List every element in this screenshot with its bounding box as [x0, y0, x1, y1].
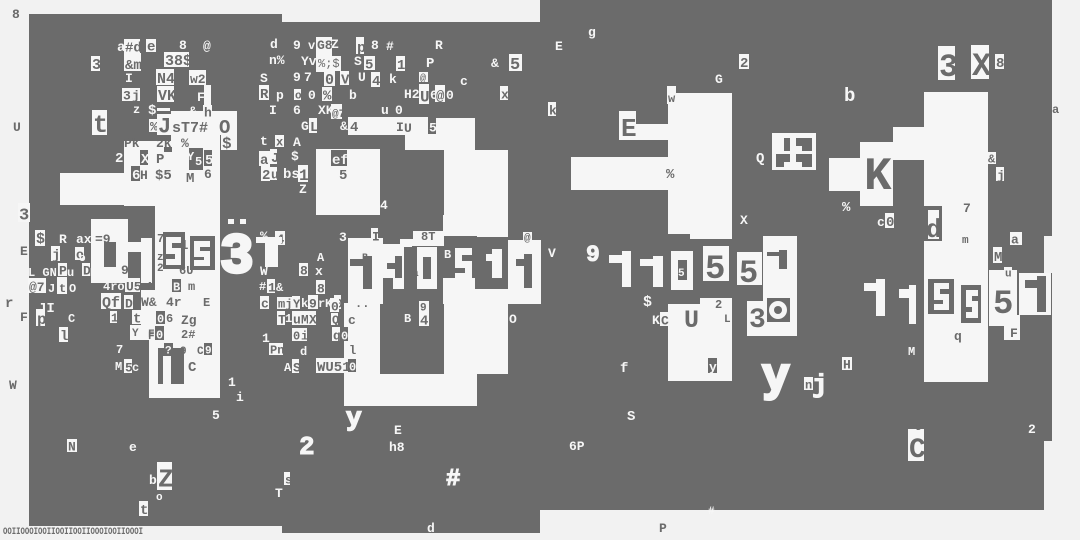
svg-text:?: ?	[165, 346, 172, 358]
svg-text:3: 3	[749, 305, 766, 336]
svg-text:P: P	[426, 56, 434, 72]
svg-text:X: X	[309, 312, 317, 327]
svg-text:O: O	[509, 312, 517, 327]
svg-text:w: w	[668, 92, 676, 106]
svg-text:Z: Z	[299, 182, 307, 197]
svg-text:$: $	[291, 149, 299, 164]
svg-text:@: @	[420, 73, 426, 85]
svg-text:2: 2	[740, 56, 748, 72]
svg-text:P: P	[659, 521, 667, 536]
svg-text:Yv: Yv	[301, 54, 317, 69]
svg-text:a: a	[1052, 103, 1059, 117]
svg-text:0: 0	[293, 329, 300, 343]
svg-text:m: m	[188, 280, 195, 294]
svg-text:7: 7	[157, 232, 164, 246]
svg-text:&: &	[340, 119, 348, 134]
svg-text:m: m	[962, 235, 969, 247]
svg-text:5: 5	[429, 120, 437, 135]
svg-text:t: t	[93, 111, 108, 140]
svg-text:#: #	[259, 280, 266, 294]
svg-text:q: q	[333, 328, 341, 343]
svg-text:u: u	[293, 312, 301, 327]
svg-text:u: u	[271, 167, 279, 182]
svg-text:C: C	[188, 360, 197, 376]
svg-text:C: C	[661, 313, 669, 328]
svg-text:N: N	[68, 439, 76, 454]
svg-text:@: @	[203, 39, 211, 54]
svg-text:@: @	[436, 89, 445, 105]
svg-text:W&: W&	[141, 295, 157, 310]
svg-text:$5: $5	[155, 168, 172, 184]
svg-text:p: p	[37, 311, 47, 329]
svg-text:f: f	[620, 361, 628, 377]
svg-text:Qf: Qf	[102, 295, 120, 312]
svg-text:Y: Y	[187, 150, 195, 164]
svg-text:%;$: %;$	[318, 57, 340, 71]
svg-text:k: k	[549, 103, 557, 118]
svg-text:%: %	[666, 167, 675, 183]
svg-text:Y: Y	[132, 328, 139, 340]
svg-text:M: M	[908, 345, 915, 359]
svg-text:E: E	[20, 244, 28, 259]
svg-text:V: V	[548, 246, 556, 261]
svg-text:h: h	[204, 105, 212, 120]
svg-text:7: 7	[963, 201, 971, 216]
svg-text:8: 8	[996, 56, 1004, 72]
svg-text:t: t	[133, 311, 141, 327]
svg-text:Pk: Pk	[124, 136, 140, 151]
svg-text:9: 9	[205, 346, 212, 358]
svg-text:9: 9	[293, 70, 301, 85]
svg-text:G: G	[301, 119, 309, 134]
svg-text:8T: 8T	[421, 230, 435, 244]
svg-text:#: #	[708, 506, 715, 518]
svg-text:%: %	[181, 136, 189, 151]
svg-text:U: U	[420, 89, 430, 107]
svg-text:3: 3	[339, 230, 347, 245]
svg-text:M: M	[115, 360, 122, 374]
svg-text:p: p	[276, 88, 284, 103]
svg-text:7: 7	[304, 70, 312, 85]
svg-text:Q: Q	[756, 151, 764, 167]
svg-text:d: d	[427, 521, 435, 536]
svg-text:6P: 6P	[569, 439, 585, 454]
svg-text:2: 2	[299, 432, 315, 462]
svg-text:9: 9	[121, 263, 129, 278]
svg-text:t: t	[140, 503, 148, 519]
svg-text:Z: Z	[158, 465, 174, 495]
svg-text:F: F	[197, 90, 205, 105]
svg-text:0: 0	[308, 88, 316, 103]
svg-text:5: 5	[365, 57, 373, 73]
svg-text:r: r	[5, 296, 13, 312]
svg-text:$: $	[643, 294, 652, 311]
svg-text:%: %	[842, 200, 851, 216]
svg-text:u: u	[381, 103, 389, 118]
svg-text:&: &	[491, 56, 499, 71]
svg-text:I: I	[269, 103, 277, 118]
svg-text:e: e	[147, 39, 155, 55]
svg-text:1: 1	[228, 375, 236, 390]
svg-text:v: v	[308, 39, 315, 53]
svg-text:6: 6	[293, 103, 301, 118]
svg-text:9: 9	[180, 346, 187, 358]
svg-text:w2: w2	[190, 72, 206, 87]
svg-text:R: R	[435, 38, 443, 53]
svg-text:E: E	[555, 39, 563, 54]
svg-text:d: d	[300, 345, 307, 359]
svg-text:bs: bs	[283, 167, 300, 183]
svg-text:j: j	[132, 88, 140, 103]
svg-text:5: 5	[195, 155, 202, 169]
svg-text:b: b	[844, 85, 855, 107]
svg-text:@: @	[524, 233, 531, 245]
svg-text:a: a	[1011, 232, 1019, 247]
svg-text:3: 3	[220, 225, 254, 289]
svg-text:9: 9	[586, 242, 600, 268]
svg-text:1: 1	[180, 238, 188, 254]
svg-text:3: 3	[123, 88, 131, 103]
svg-text:d: d	[926, 215, 942, 245]
svg-text:&: &	[988, 153, 996, 167]
svg-text:P: P	[156, 152, 164, 168]
svg-text:0: 0	[331, 299, 339, 314]
svg-text:%: %	[323, 88, 332, 104]
svg-text:L: L	[724, 314, 731, 326]
svg-text:O: O	[69, 282, 76, 296]
svg-text:C: C	[197, 346, 204, 358]
svg-text:R: R	[59, 232, 67, 247]
svg-text:1: 1	[268, 280, 276, 295]
svg-text:1: 1	[397, 58, 405, 74]
svg-text:j: j	[997, 168, 1005, 183]
svg-text:q: q	[954, 329, 962, 344]
svg-text:n%: n%	[269, 53, 285, 68]
svg-text:WU51: WU51	[317, 360, 351, 376]
svg-text:%: %	[150, 119, 158, 134]
svg-text:5: 5	[339, 168, 347, 184]
svg-text:N: N	[148, 280, 155, 294]
svg-text:9: 9	[309, 296, 317, 311]
svg-text:D: D	[916, 423, 922, 433]
svg-text:U5: U5	[126, 279, 142, 294]
svg-text:5: 5	[510, 56, 520, 75]
svg-text:0: 0	[886, 215, 894, 231]
svg-text:L: L	[310, 120, 318, 136]
svg-text:U: U	[13, 120, 21, 135]
svg-text:=9: =9	[95, 232, 111, 247]
svg-text:J: J	[271, 151, 279, 167]
svg-text:l: l	[349, 344, 356, 358]
svg-text:2: 2	[157, 263, 164, 275]
svg-text:y: y	[709, 360, 717, 375]
svg-text:o: o	[295, 91, 302, 103]
svg-text:S: S	[354, 54, 362, 69]
svg-text:Z: Z	[331, 37, 339, 52]
svg-text:4r: 4r	[166, 295, 182, 310]
svg-text:i: i	[301, 329, 308, 343]
svg-text:Zg: Zg	[181, 313, 197, 328]
svg-text:4: 4	[380, 198, 388, 213]
svg-text:u: u	[1005, 269, 1012, 281]
svg-text:b: b	[349, 88, 357, 103]
svg-text:0: 0	[156, 328, 163, 342]
svg-text:$: $	[222, 135, 232, 153]
svg-text:0: 0	[446, 88, 454, 103]
svg-text:3: 3	[92, 57, 101, 74]
svg-text:1: 1	[262, 331, 270, 346]
svg-text:3: 3	[19, 207, 29, 226]
svg-text:i: i	[236, 390, 244, 405]
svg-text:&: &	[189, 104, 197, 119]
svg-text:t: t	[59, 282, 66, 296]
svg-text:H: H	[140, 168, 148, 183]
svg-text:I: I	[372, 229, 380, 244]
svg-text:E: E	[621, 114, 637, 144]
svg-text:6: 6	[204, 167, 212, 182]
svg-text:W: W	[260, 264, 268, 279]
svg-text:4: 4	[420, 313, 428, 329]
svg-text:6: 6	[166, 312, 173, 326]
svg-text:0: 0	[325, 72, 334, 89]
svg-text:@7: @7	[29, 280, 45, 295]
svg-text:K: K	[652, 313, 660, 328]
svg-text:B: B	[362, 253, 368, 264]
svg-text:M: M	[186, 171, 194, 187]
svg-text:#: #	[446, 466, 460, 493]
svg-text:g: g	[588, 25, 596, 40]
svg-text:1: 1	[285, 312, 292, 326]
svg-text:ef: ef	[332, 153, 349, 169]
svg-text:M: M	[994, 250, 1002, 266]
svg-text:z: z	[133, 103, 140, 117]
svg-text:3: 3	[939, 49, 958, 86]
svg-text:mj: mj	[278, 298, 292, 312]
svg-text:H2: H2	[404, 87, 420, 102]
svg-text:c: c	[877, 215, 885, 230]
svg-text:1: 1	[111, 312, 118, 326]
svg-text:x: x	[315, 264, 323, 279]
svg-text:7: 7	[116, 343, 123, 357]
svg-text:o: o	[156, 492, 163, 504]
svg-text:U: U	[358, 70, 366, 85]
svg-text:j: j	[812, 370, 828, 400]
svg-text:4ro: 4ro	[103, 280, 125, 294]
svg-text:9: 9	[293, 38, 301, 53]
svg-text:j: j	[52, 248, 60, 264]
svg-text:8: 8	[179, 38, 187, 53]
svg-text:$: $	[36, 231, 45, 248]
svg-text:Pn: Pn	[270, 344, 284, 358]
svg-text:y: y	[346, 403, 362, 433]
svg-text:6U: 6U	[179, 264, 193, 278]
svg-text:c: c	[132, 361, 139, 375]
svg-text:K: K	[864, 151, 892, 203]
svg-text:0: 0	[341, 329, 348, 343]
svg-text:S: S	[293, 360, 301, 375]
svg-text:..: ..	[355, 297, 369, 311]
svg-text:4: 4	[372, 74, 380, 90]
svg-text:c: c	[261, 296, 269, 311]
svg-text:OOIIOOOIOOIIOOIIOOIIOOOIOOIIOO: OOIIOOOIOOIIOOIIOOIIOOOIOOIIOOOI	[3, 527, 143, 538]
svg-text:B: B	[173, 280, 180, 294]
svg-text:0: 0	[349, 360, 356, 374]
svg-text:#: #	[386, 39, 394, 54]
svg-text:G: G	[715, 72, 723, 87]
svg-text:d: d	[270, 37, 278, 52]
svg-text:4: 4	[350, 120, 358, 136]
svg-text:8: 8	[12, 7, 20, 22]
svg-text:k: k	[389, 72, 397, 87]
svg-text:X: X	[972, 48, 992, 85]
svg-text:c: c	[348, 313, 356, 328]
svg-text:F: F	[148, 331, 155, 343]
svg-text:b: b	[149, 473, 157, 488]
svg-text:X: X	[740, 213, 748, 228]
svg-text:c: c	[460, 74, 468, 89]
svg-text:Y: Y	[293, 297, 301, 311]
svg-text:E: E	[90, 266, 97, 280]
svg-text:y: y	[762, 352, 790, 404]
svg-text:0: 0	[395, 103, 403, 118]
svg-text:S: S	[627, 409, 635, 425]
svg-text:Q: Q	[332, 314, 339, 328]
svg-text:A: A	[284, 361, 292, 375]
svg-text:N4: N4	[157, 71, 175, 88]
svg-text:U: U	[404, 121, 412, 136]
svg-text:$: $	[148, 103, 156, 119]
svg-text:38$: 38$	[165, 53, 192, 70]
svg-text:2: 2	[262, 168, 270, 184]
svg-text:J: J	[48, 282, 55, 296]
svg-text:X: X	[141, 152, 150, 168]
svg-text:x: x	[501, 87, 509, 102]
svg-text:sT7#: sT7#	[172, 120, 208, 137]
svg-text:&: &	[276, 281, 284, 295]
svg-text:C: C	[909, 435, 926, 466]
svg-text:L GN: L GN	[28, 266, 57, 280]
svg-text:e: e	[129, 440, 137, 455]
svg-text:5: 5	[705, 251, 725, 289]
svg-text:W: W	[9, 378, 17, 393]
svg-text:u: u	[67, 266, 74, 280]
svg-text:a: a	[412, 268, 419, 280]
svg-text:8: 8	[300, 263, 308, 278]
svg-text:l: l	[60, 329, 68, 345]
svg-text:VK: VK	[158, 88, 176, 105]
svg-text:B: B	[404, 312, 411, 326]
svg-text:M: M	[301, 312, 309, 327]
svg-text:V: V	[341, 72, 350, 88]
svg-text:8: 8	[371, 38, 379, 53]
svg-text:5: 5	[212, 408, 220, 423]
svg-text:P: P	[59, 263, 67, 278]
svg-text:t: t	[260, 134, 268, 149]
svg-text:5: 5	[993, 286, 1013, 324]
svg-text:k: k	[301, 297, 308, 311]
svg-text:F: F	[20, 310, 28, 325]
svg-text:2: 2	[715, 298, 722, 312]
svg-text:5: 5	[739, 255, 758, 292]
svg-text:2f: 2f	[115, 151, 132, 167]
svg-text:A: A	[317, 251, 325, 265]
svg-text:B: B	[444, 248, 451, 262]
svg-text:2: 2	[1028, 422, 1036, 437]
svg-text:A: A	[293, 135, 301, 150]
svg-text:C: C	[68, 312, 75, 326]
svg-text:5: 5	[678, 268, 685, 280]
svg-text:F: F	[1010, 326, 1018, 341]
svg-text:2#: 2#	[181, 328, 195, 342]
svg-text:s: s	[285, 473, 292, 487]
svg-text:8: 8	[317, 281, 325, 296]
svg-text:I: I	[125, 71, 133, 86]
svg-text:E: E	[394, 423, 402, 438]
svg-text:T: T	[275, 486, 283, 501]
svg-text:0: 0	[157, 312, 164, 326]
svg-text:E: E	[203, 296, 210, 310]
svg-text:ax: ax	[76, 232, 92, 247]
svg-text:h8: h8	[389, 440, 405, 455]
svg-text:R: R	[260, 87, 269, 103]
svg-text:I: I	[396, 120, 404, 135]
svg-text:U: U	[684, 306, 699, 335]
svg-text:D: D	[125, 296, 133, 311]
svg-text:S: S	[260, 71, 268, 86]
svg-text:H: H	[843, 357, 851, 372]
svg-text:x: x	[276, 136, 283, 150]
